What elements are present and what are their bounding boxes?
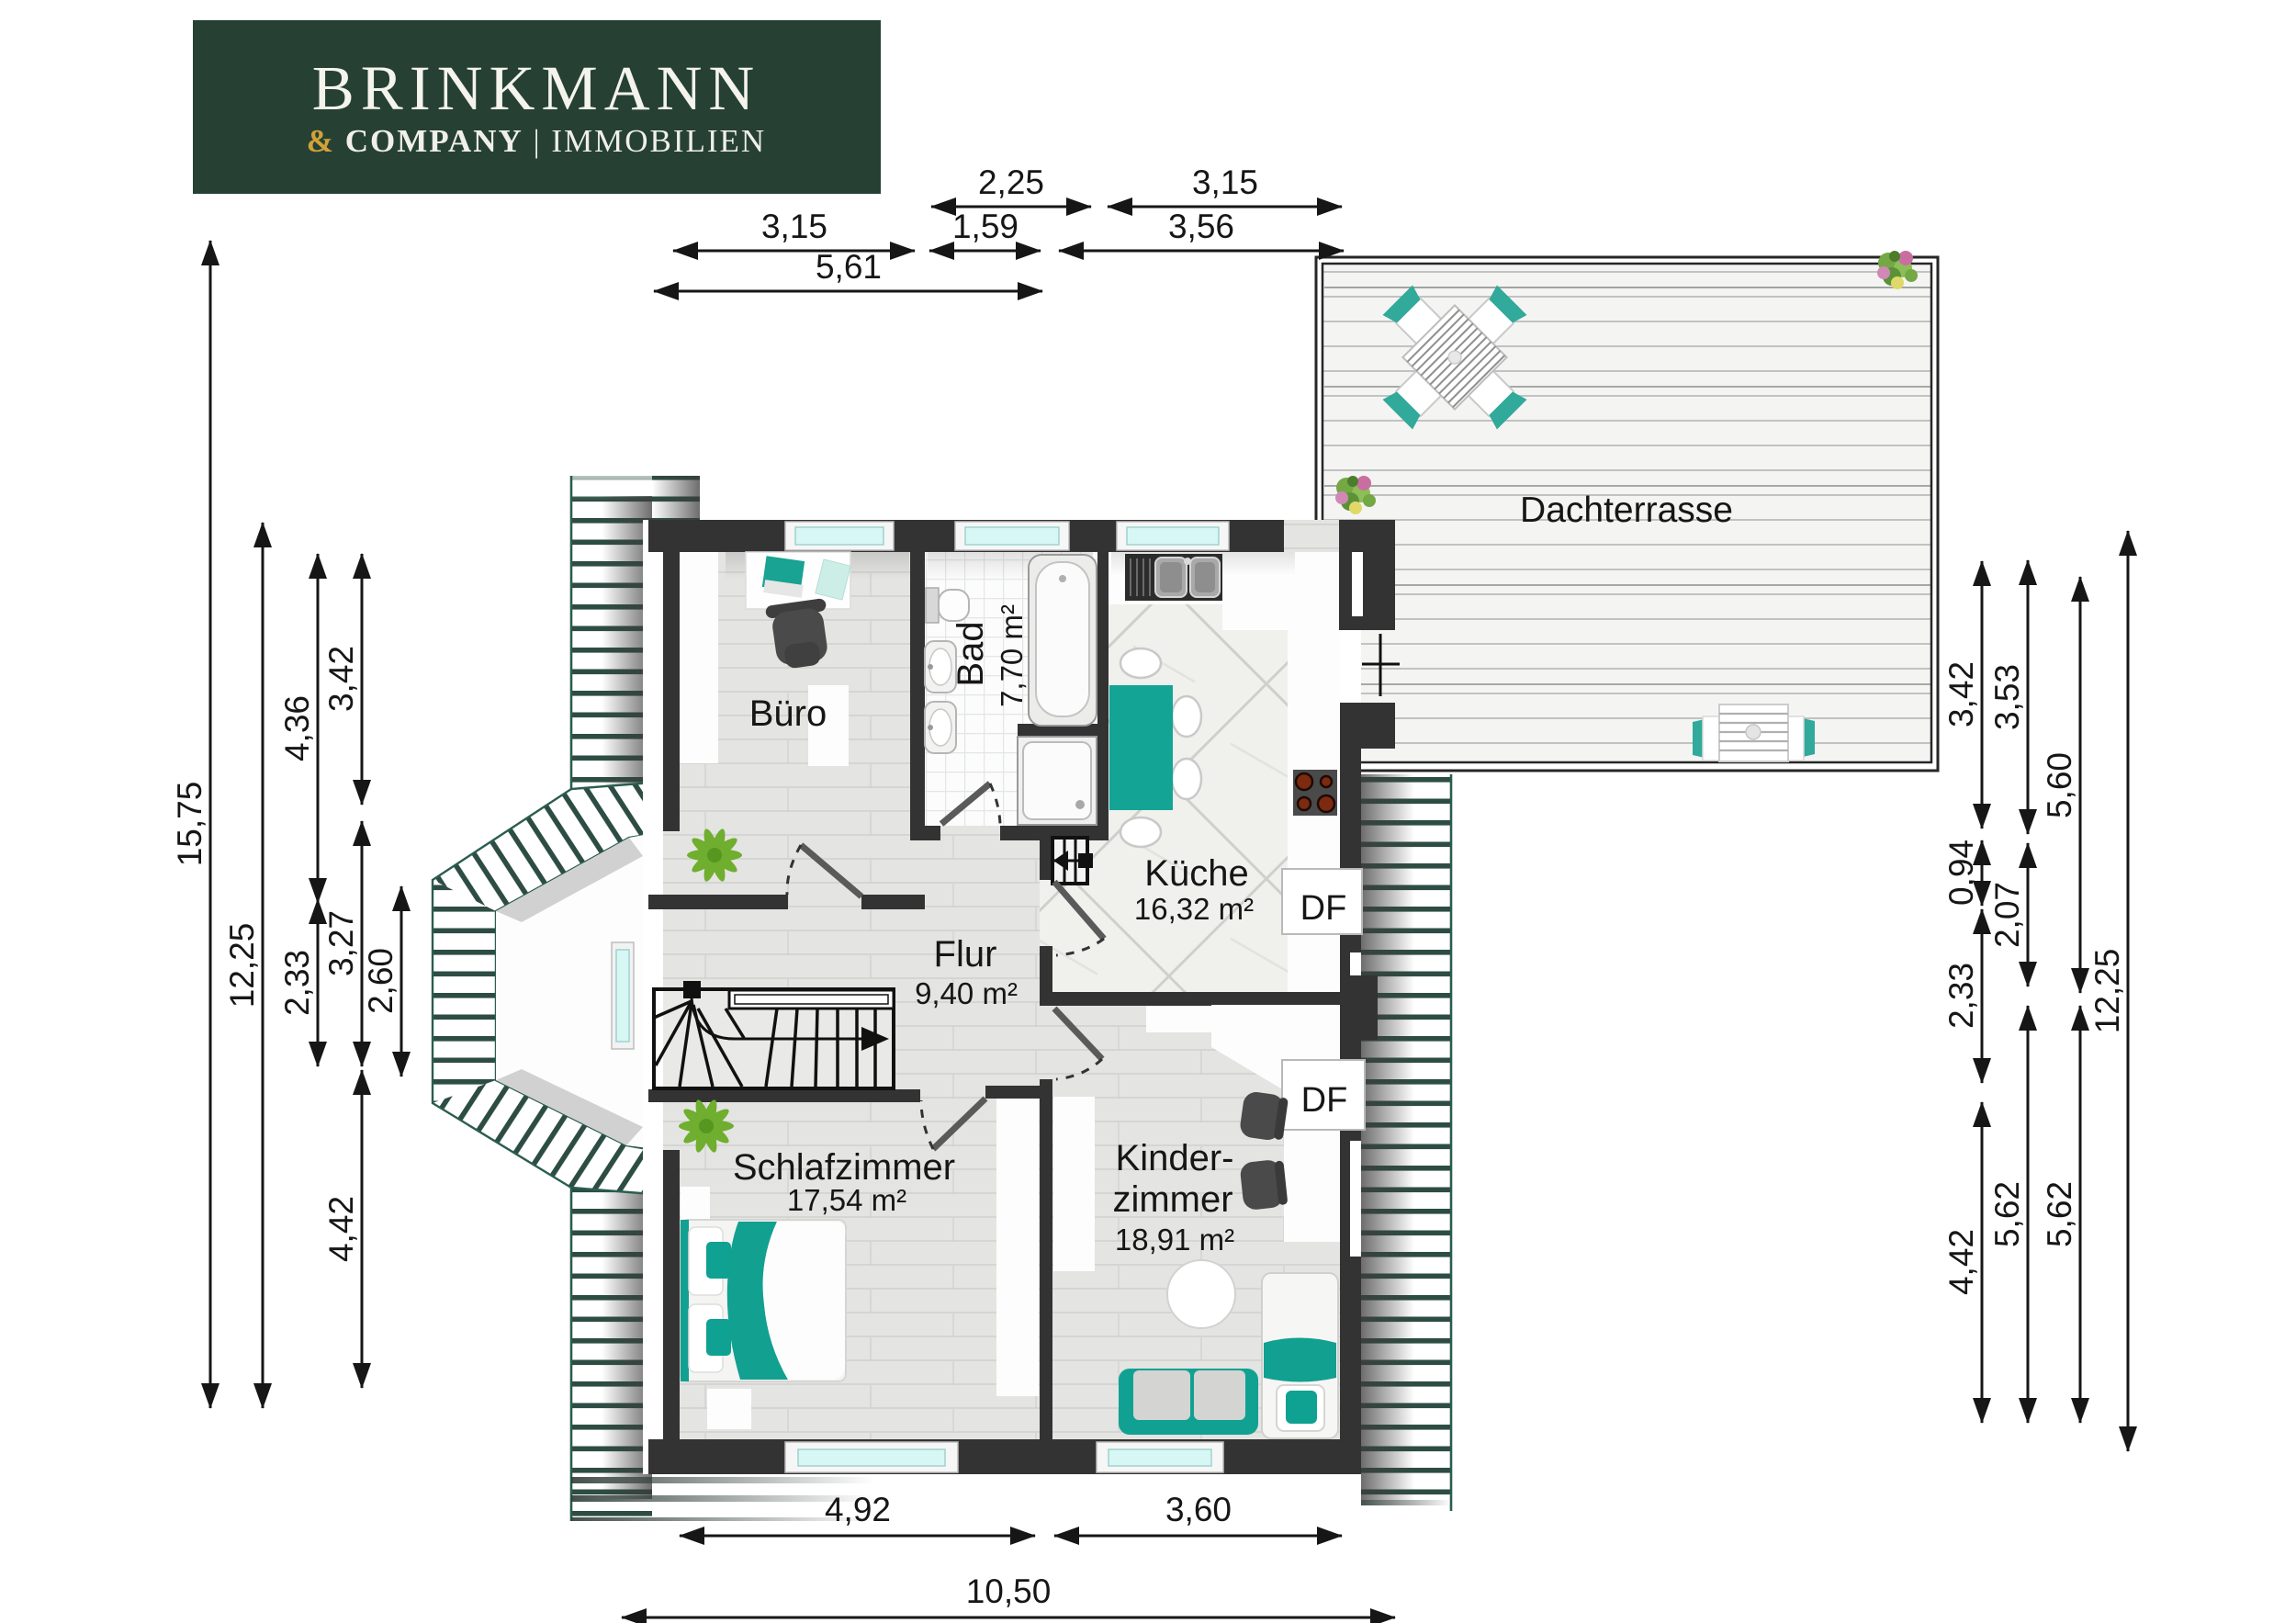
svg-text:2,33: 2,33	[1942, 963, 1980, 1029]
svg-text:BRINKMANN: BRINKMANN	[312, 53, 761, 123]
svg-text:zimmer: zimmer	[1112, 1179, 1232, 1220]
svg-text:3,15: 3,15	[1192, 163, 1258, 201]
svg-text:5,62: 5,62	[2041, 1181, 2078, 1247]
svg-text:2,60: 2,60	[362, 948, 400, 1014]
svg-text:Schlafzimmer: Schlafzimmer	[733, 1147, 955, 1188]
svg-text:4,36: 4,36	[278, 695, 316, 761]
svg-text:17,54 m²: 17,54 m²	[787, 1183, 906, 1217]
svg-text:12,25: 12,25	[2088, 949, 2126, 1034]
svg-text:Bad: Bad	[951, 621, 991, 686]
svg-text:2,07: 2,07	[1988, 882, 2026, 948]
svg-text:1,59: 1,59	[952, 208, 1019, 245]
svg-text:3,42: 3,42	[322, 646, 360, 712]
svg-text:10,50: 10,50	[966, 1572, 1052, 1610]
svg-text:18,91 m²: 18,91 m²	[1115, 1223, 1234, 1257]
svg-text:Kinder-: Kinder-	[1116, 1138, 1234, 1178]
svg-text:4,42: 4,42	[322, 1196, 360, 1262]
svg-text:5,60: 5,60	[2041, 752, 2078, 818]
svg-text:15,75: 15,75	[171, 782, 208, 867]
svg-text:3,42: 3,42	[1942, 661, 1980, 727]
svg-text:2,25: 2,25	[978, 163, 1044, 201]
svg-text:7,70 m²: 7,70 m²	[995, 604, 1029, 707]
svg-text:Küche: Küche	[1144, 853, 1248, 894]
svg-text:0,94: 0,94	[1942, 840, 1980, 906]
svg-text:3,15: 3,15	[761, 208, 827, 245]
svg-text:DF: DF	[1300, 889, 1347, 928]
svg-text:Büro: Büro	[749, 693, 827, 734]
svg-text:12,25: 12,25	[223, 923, 261, 1009]
svg-text:16,32 m²: 16,32 m²	[1134, 892, 1254, 926]
svg-text:4,42: 4,42	[1942, 1229, 1980, 1295]
svg-text:& COMPANY | IMMOBILIEN: & COMPANY | IMMOBILIEN	[307, 123, 766, 159]
svg-text:DF: DF	[1301, 1081, 1348, 1120]
svg-text:3,53: 3,53	[1988, 664, 2026, 730]
svg-text:3,27: 3,27	[322, 910, 360, 976]
svg-text:3,56: 3,56	[1168, 208, 1234, 245]
svg-text:Dachterrasse: Dachterrasse	[1520, 490, 1733, 530]
svg-text:Flur: Flur	[934, 934, 997, 975]
svg-text:5,62: 5,62	[1988, 1181, 2026, 1247]
svg-text:3,60: 3,60	[1165, 1491, 1232, 1528]
svg-text:2,33: 2,33	[278, 950, 316, 1016]
svg-text:4,92: 4,92	[825, 1491, 891, 1528]
svg-text:9,40 m²: 9,40 m²	[915, 976, 1018, 1010]
svg-text:5,61: 5,61	[816, 248, 882, 286]
